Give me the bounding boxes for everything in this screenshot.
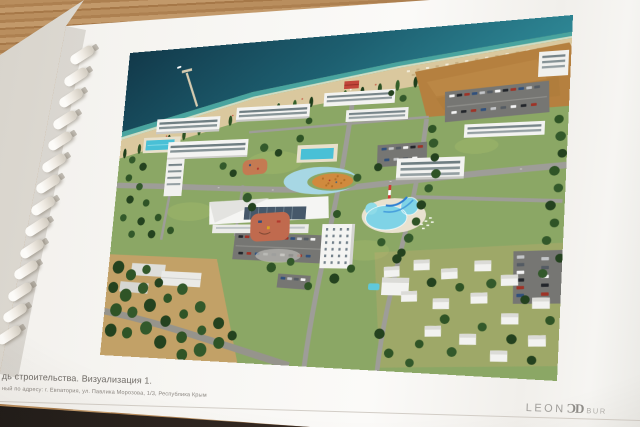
photo-of-bound-document: дь строительства. Визуализация 1. ный по…: [0, 0, 640, 427]
logo-monogram-icon: ƆD: [566, 400, 583, 417]
logo-partial-text: BUR: [586, 406, 607, 416]
studio-logo: LEON ƆD BUR: [525, 399, 607, 418]
logo-text: LEON: [525, 402, 565, 415]
architectural-rendering: [100, 15, 573, 381]
rendering-svg: [100, 15, 573, 381]
rendering-hotel-building-right: [396, 156, 465, 180]
